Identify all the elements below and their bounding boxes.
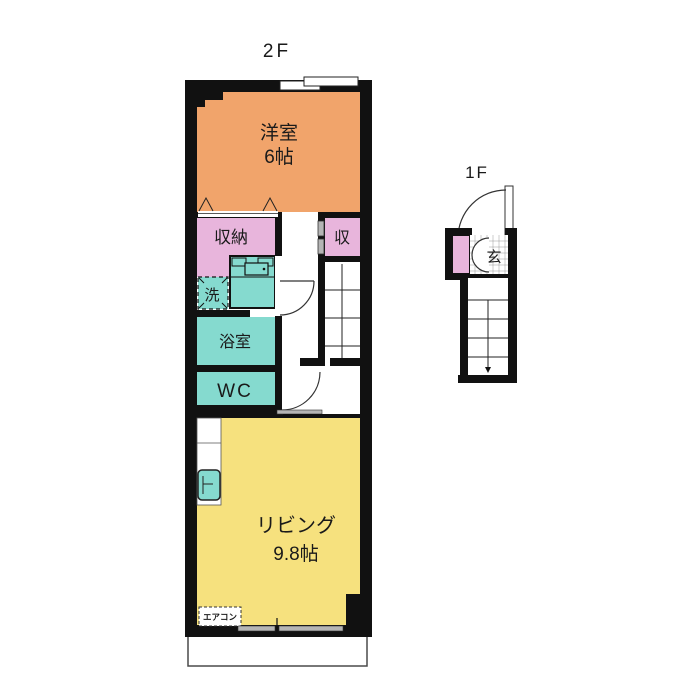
wall-stub-right: [330, 358, 360, 366]
1f-stair-bottom-wall: [458, 375, 517, 383]
room-living-size: 9.8帖: [273, 543, 318, 565]
living-top-thin-wall: [283, 414, 360, 418]
wall-stub-left: [300, 358, 323, 366]
room-living-label: リビング: [256, 514, 336, 537]
1f-stair-left-wall: [460, 278, 468, 383]
floorplan-svg: 2F 洋室 6帖 収納: [0, 0, 700, 700]
aircon-box: エアコン: [199, 607, 241, 626]
storage-small-door-panel-1: [318, 221, 324, 236]
second-floor-title: 2F: [263, 41, 291, 62]
entrance-genkan: 玄: [470, 235, 508, 276]
1f-right-wall: [508, 228, 517, 383]
entrance-closet: [452, 235, 470, 274]
laundry-label: 洗: [204, 287, 219, 304]
washbasin-unit: [230, 256, 275, 308]
room-storage-small-label: 収: [334, 229, 350, 247]
closet-opening: [198, 211, 278, 217]
window-top-right: [304, 77, 358, 86]
storage-small-door-panel-2: [318, 239, 324, 254]
room-western-label: 洋室: [260, 122, 298, 144]
second-floor-plan: 2F 洋室 6帖 収納: [185, 41, 372, 666]
hallway-top-opening: [282, 212, 318, 218]
vanity-tab-left: [232, 258, 246, 266]
faucet-dot: [263, 268, 266, 271]
kitchen-sink: [198, 470, 220, 500]
laundry-space: 洗: [198, 277, 228, 309]
genkan-step-wall: [466, 274, 508, 278]
first-floor-title: 1F: [465, 163, 489, 182]
stair-landing-2f: [282, 366, 360, 414]
room-toilet-label: WC: [217, 381, 253, 402]
genkan-label: 玄: [486, 249, 501, 266]
pillar-notch-topleft-step: [197, 92, 205, 107]
aircon-label: エアコン: [203, 612, 238, 622]
balcony: [188, 633, 367, 666]
floorplan-canvas: 2F 洋室 6帖 収納: [0, 0, 700, 700]
staircase-2f: [325, 262, 360, 372]
living-door-threshold: [277, 410, 322, 414]
room-storage-large-label: 収納: [214, 228, 248, 247]
bathroom-door-opening: [250, 310, 275, 317]
room-bathroom-label: 浴室: [219, 333, 251, 351]
washroom-door-opening: [275, 256, 282, 316]
room-western-size: 6帖: [264, 146, 294, 168]
pillar-notch-bottomright: [346, 594, 360, 625]
